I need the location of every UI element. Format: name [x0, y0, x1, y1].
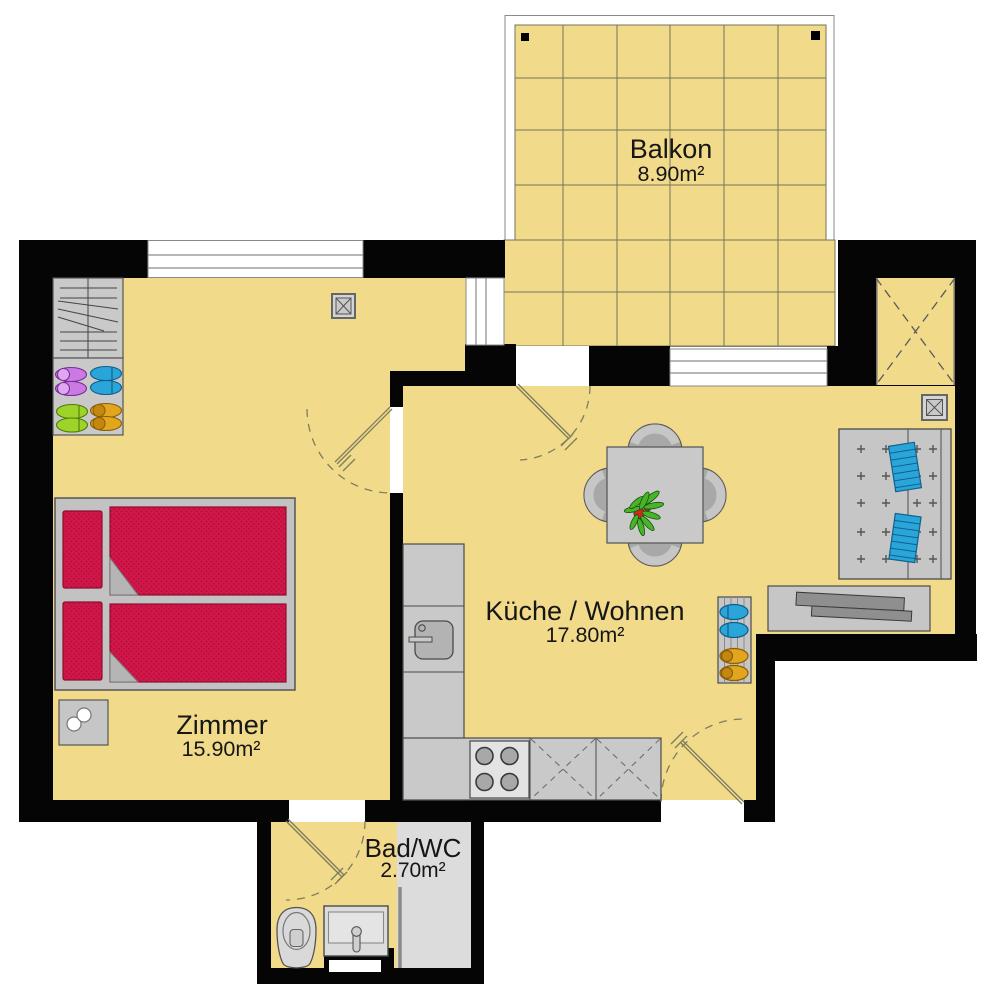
- svg-text:Küche / Wohnen: Küche / Wohnen: [485, 596, 684, 626]
- svg-text:8.90m²: 8.90m²: [638, 162, 705, 186]
- svg-text:Zimmer: Zimmer: [176, 710, 267, 740]
- svg-text:17.80m²: 17.80m²: [546, 623, 625, 647]
- svg-text:2.70m²: 2.70m²: [380, 859, 445, 882]
- svg-text:15.90m²: 15.90m²: [182, 737, 261, 761]
- svg-text:Balkon: Balkon: [630, 134, 713, 164]
